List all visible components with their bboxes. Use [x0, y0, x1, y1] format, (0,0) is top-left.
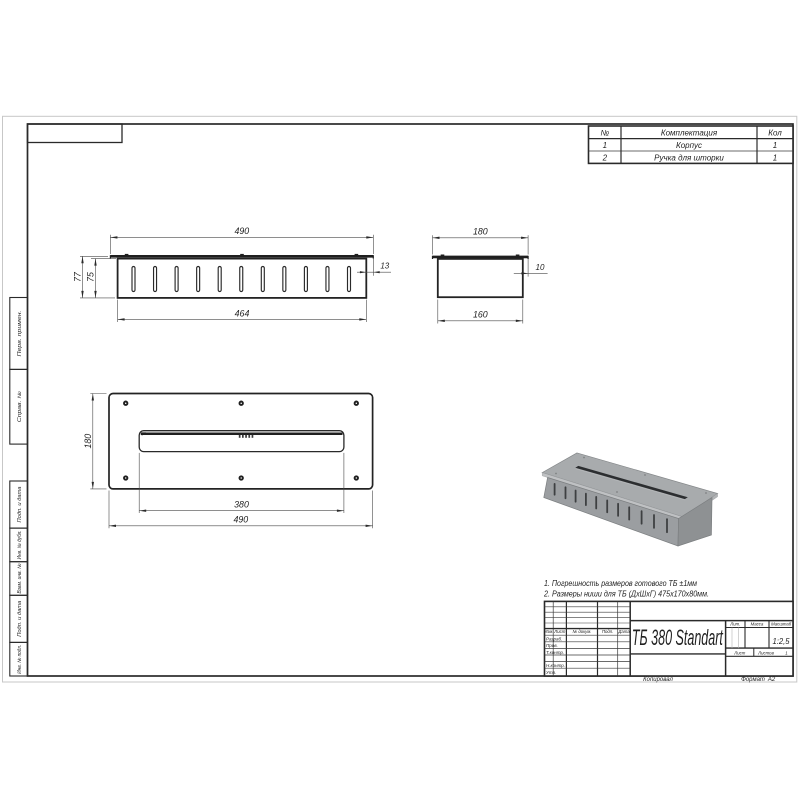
- svg-text:ТБ 380 Standart: ТБ 380 Standart: [632, 625, 724, 650]
- svg-text:Разраб.: Разраб.: [546, 637, 562, 642]
- svg-text:Корпус: Корпус: [676, 141, 702, 150]
- svg-text:Лист: Лист: [733, 651, 745, 656]
- svg-text:Комплектация: Комплектация: [661, 128, 718, 137]
- svg-text:160: 160: [473, 310, 488, 320]
- svg-text:Лист: Лист: [553, 629, 565, 634]
- svg-text:Инв. № подл.: Инв. № подл.: [17, 645, 23, 674]
- svg-text:Лит.: Лит.: [729, 622, 740, 627]
- svg-text:Подп. и дата: Подп. и дата: [17, 486, 23, 522]
- svg-text:13: 13: [380, 262, 389, 271]
- svg-text:77: 77: [73, 271, 83, 282]
- svg-text:Масштаб: Масштаб: [771, 622, 792, 627]
- svg-text:Подп.: Подп.: [602, 629, 613, 634]
- svg-text:180: 180: [473, 227, 488, 237]
- svg-text:Подп. и дата: Подп. и дата: [17, 601, 23, 637]
- svg-text:1. Погрешность размеров готово: 1. Погрешность размеров готового ТБ ±1мм: [544, 578, 697, 588]
- svg-text:75: 75: [86, 272, 96, 282]
- svg-text:Изм.: Изм.: [544, 629, 553, 634]
- svg-text:Пров.: Пров.: [546, 643, 558, 648]
- svg-text:464: 464: [235, 308, 250, 318]
- svg-text:№ докум.: № докум.: [573, 629, 592, 634]
- svg-text:490: 490: [233, 515, 248, 525]
- svg-text:Копировал: Копировал: [643, 677, 673, 683]
- svg-text:1: 1: [773, 153, 777, 162]
- svg-text:Инв. № дубл.: Инв. № дубл.: [17, 530, 23, 559]
- svg-text:Н.контр.: Н.контр.: [546, 663, 565, 668]
- svg-text:Формат: Формат: [741, 677, 765, 683]
- svg-text:Листов: Листов: [757, 651, 774, 656]
- svg-text:Т.контр.: Т.контр.: [546, 650, 564, 655]
- svg-text:490: 490: [234, 226, 249, 236]
- svg-text:1: 1: [603, 141, 607, 150]
- svg-text:1: 1: [773, 141, 777, 150]
- svg-text:180: 180: [83, 434, 93, 449]
- svg-text:Справ. №: Справ. №: [17, 390, 23, 422]
- svg-text:№: №: [600, 128, 609, 137]
- svg-text:А2: А2: [767, 677, 776, 683]
- svg-text:380: 380: [234, 499, 249, 509]
- svg-text:1:2,5: 1:2,5: [773, 636, 790, 646]
- svg-text:Ручка для шторки: Ручка для шторки: [654, 153, 724, 162]
- svg-text:Масса: Масса: [751, 622, 764, 627]
- svg-text:Взам. инв. №: Взам. инв. №: [17, 563, 23, 594]
- svg-text:Утв.: Утв.: [546, 670, 556, 675]
- svg-text:Дата: Дата: [617, 629, 630, 634]
- svg-text:Кол: Кол: [768, 128, 782, 137]
- svg-text:2: 2: [602, 153, 608, 162]
- svg-text:2. Размеры ниши для ТБ (ДхШхГ): 2. Размеры ниши для ТБ (ДхШхГ) 475х170х8…: [543, 588, 709, 598]
- svg-text:10: 10: [536, 263, 545, 272]
- svg-text:Перв. примен.: Перв. примен.: [17, 311, 23, 357]
